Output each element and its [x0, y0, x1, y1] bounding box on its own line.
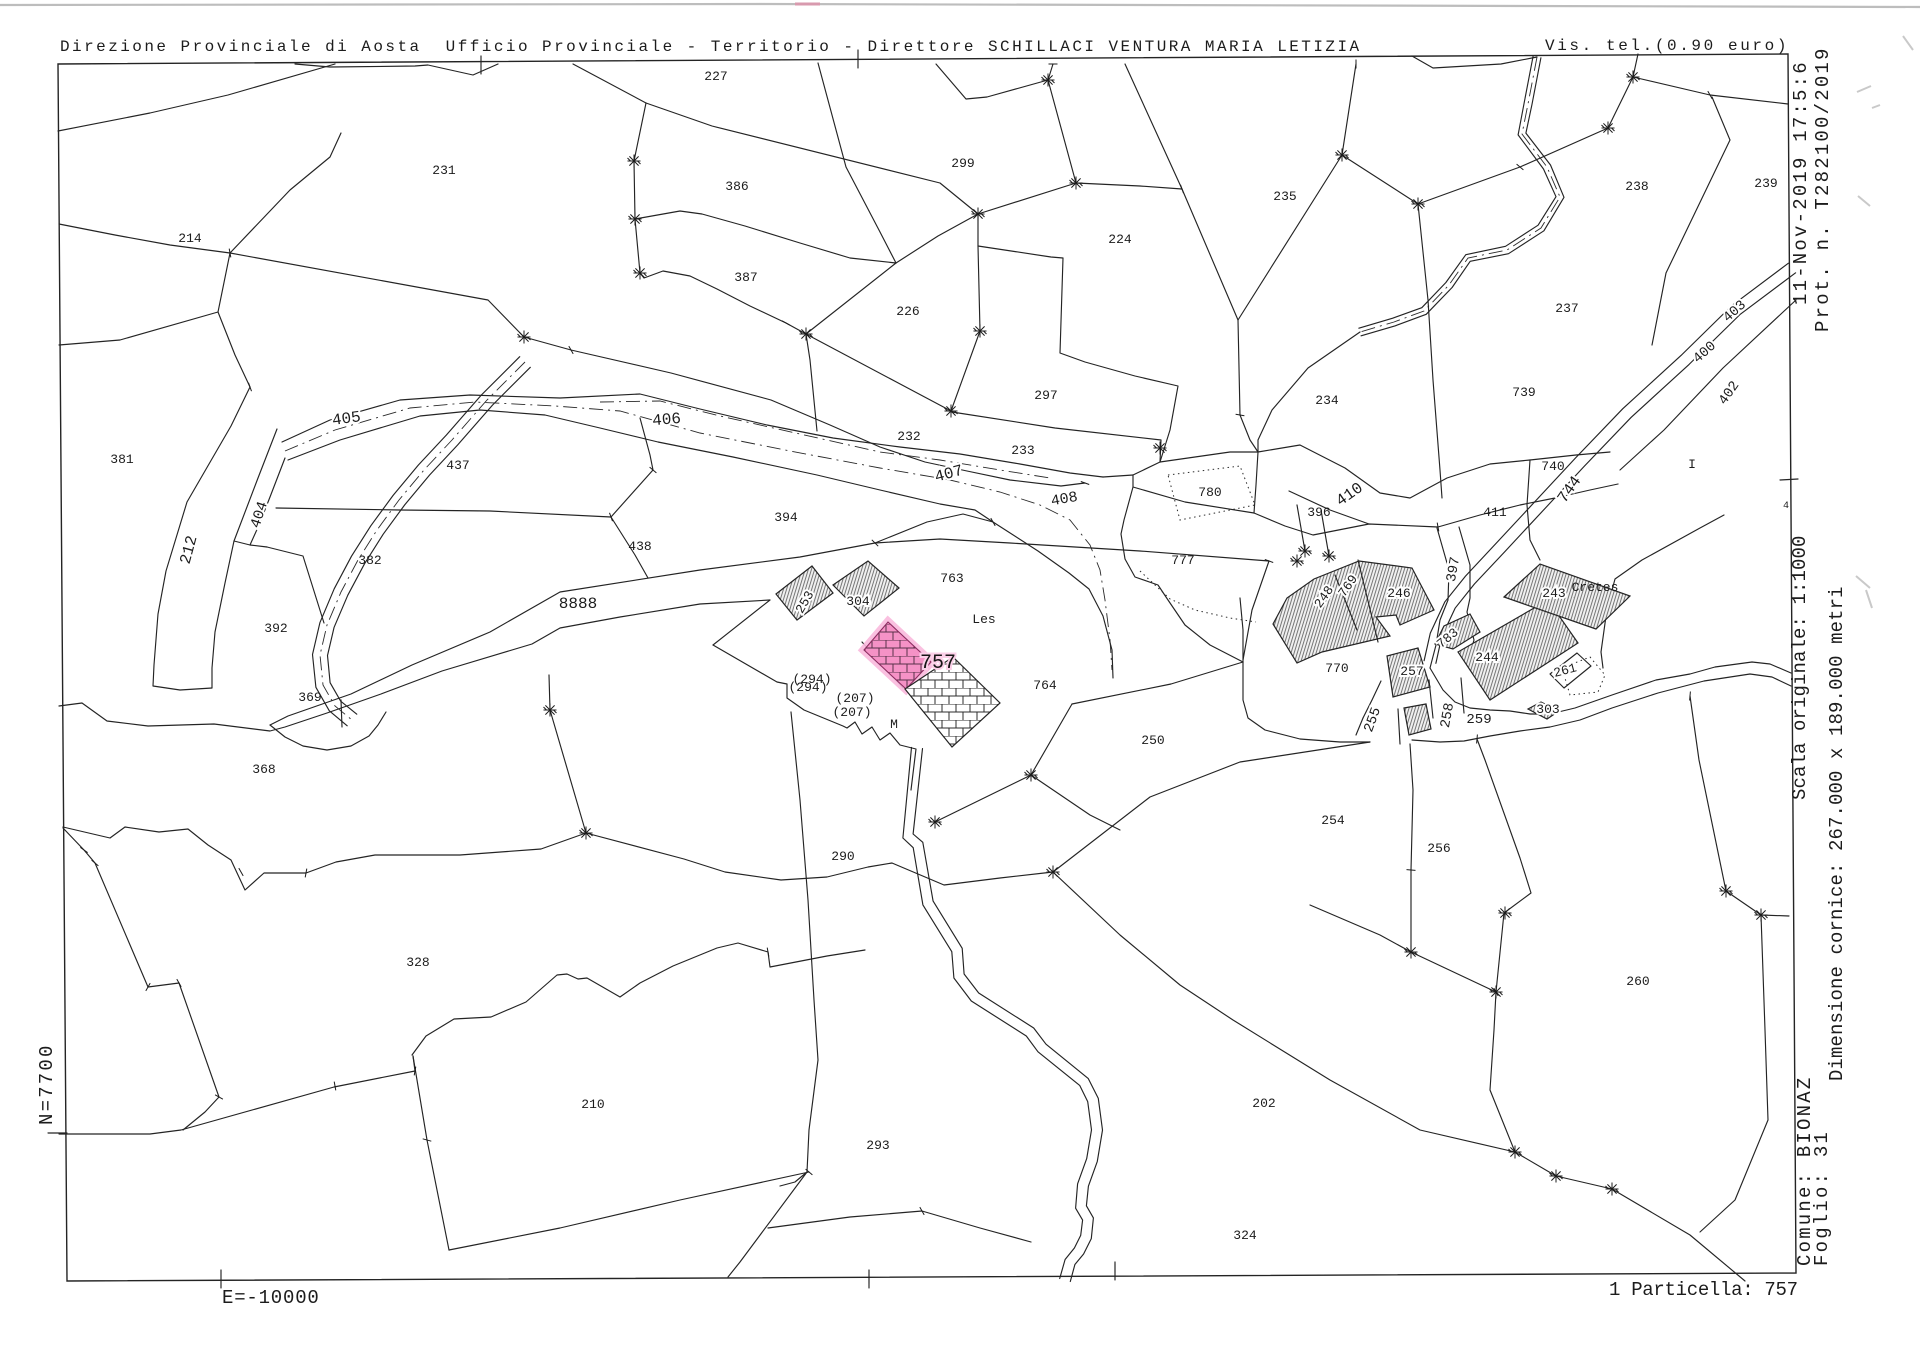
- svg-text:777: 777: [1171, 553, 1194, 568]
- svg-text:369: 369: [298, 690, 321, 705]
- svg-text:Foglio: 31: Foglio: 31: [1811, 1130, 1833, 1266]
- svg-text:E=-10000: E=-10000: [222, 1287, 320, 1309]
- svg-text:250: 250: [1141, 733, 1164, 748]
- svg-text:763: 763: [940, 571, 963, 586]
- svg-text:293: 293: [866, 1138, 889, 1153]
- svg-text:231: 231: [432, 163, 456, 178]
- svg-text:238: 238: [1625, 179, 1648, 194]
- svg-text:Cretes: Cretes: [1572, 580, 1619, 595]
- svg-text:234: 234: [1315, 393, 1339, 408]
- svg-text:257: 257: [1400, 664, 1423, 679]
- svg-text:290: 290: [831, 849, 854, 864]
- svg-text:N=7700: N=7700: [36, 1043, 58, 1125]
- svg-text:387: 387: [734, 270, 757, 285]
- svg-text:368: 368: [252, 762, 275, 777]
- svg-text:406: 406: [652, 410, 682, 430]
- svg-text:411: 411: [1483, 505, 1507, 520]
- svg-text:224: 224: [1108, 232, 1132, 247]
- svg-text:4: 4: [1783, 501, 1789, 512]
- svg-text:239: 239: [1754, 176, 1777, 191]
- svg-text:739: 739: [1512, 385, 1535, 400]
- svg-text:Scala originale: 1:1000: Scala originale: 1:1000: [1789, 535, 1811, 800]
- svg-text:764: 764: [1033, 678, 1057, 693]
- svg-text:304: 304: [846, 594, 870, 609]
- svg-text:202: 202: [1252, 1096, 1275, 1111]
- svg-text:328: 328: [406, 955, 429, 970]
- svg-text:11-Nov-2019 17:5:6: 11-Nov-2019 17:5:6: [1790, 60, 1812, 305]
- svg-text:244: 244: [1475, 650, 1499, 665]
- svg-text:Prot. n. T282100/2019: Prot. n. T282100/2019: [1812, 46, 1834, 332]
- svg-text:303: 303: [1536, 702, 1559, 717]
- svg-text:437: 437: [446, 458, 469, 473]
- svg-text:232: 232: [897, 429, 920, 444]
- svg-text:260: 260: [1626, 974, 1649, 989]
- svg-text:Les: Les: [972, 612, 995, 627]
- svg-text:254: 254: [1321, 813, 1345, 828]
- svg-text:I: I: [1688, 457, 1696, 472]
- svg-text:382: 382: [358, 553, 381, 568]
- svg-text:Dimensione cornice: 267.000 x: Dimensione cornice: 267.000 x 189.000 me…: [1826, 586, 1848, 1081]
- svg-text:246: 246: [1387, 586, 1410, 601]
- svg-text:Direzione Provinciale di Aosta: Direzione Provinciale di Aosta Ufficio P…: [60, 38, 1362, 56]
- svg-text:256: 256: [1427, 841, 1450, 856]
- svg-text:396: 396: [1307, 505, 1330, 520]
- svg-text:381: 381: [110, 452, 134, 467]
- svg-text:392: 392: [264, 621, 287, 636]
- svg-text:214: 214: [178, 231, 202, 246]
- svg-text:210: 210: [581, 1097, 604, 1112]
- svg-text:(207): (207): [835, 691, 874, 706]
- svg-text:227: 227: [704, 69, 727, 84]
- svg-text:243: 243: [1542, 586, 1565, 601]
- svg-text:(207): (207): [832, 705, 871, 720]
- svg-text:394: 394: [774, 510, 798, 525]
- svg-text:386: 386: [725, 179, 748, 194]
- svg-text:Vis. tel.(0.90 euro): Vis. tel.(0.90 euro): [1545, 37, 1789, 55]
- svg-text:1 Particella: 757: 1 Particella: 757: [1609, 1279, 1798, 1301]
- svg-text:780: 780: [1198, 485, 1221, 500]
- svg-text:8888: 8888: [559, 595, 597, 613]
- svg-text:438: 438: [628, 539, 651, 554]
- svg-text:299: 299: [951, 156, 974, 171]
- svg-text:237: 237: [1555, 301, 1578, 316]
- svg-text:757: 757: [920, 652, 956, 675]
- svg-text:770: 770: [1325, 661, 1348, 676]
- svg-text:297: 297: [1034, 388, 1057, 403]
- svg-text:259: 259: [1466, 712, 1491, 728]
- svg-text:M: M: [890, 717, 898, 732]
- svg-text:324: 324: [1233, 1228, 1257, 1243]
- svg-text:235: 235: [1273, 189, 1296, 204]
- svg-text:(294): (294): [788, 680, 827, 695]
- svg-text:233: 233: [1011, 443, 1034, 458]
- svg-text:740: 740: [1541, 459, 1564, 474]
- svg-text:226: 226: [896, 304, 919, 319]
